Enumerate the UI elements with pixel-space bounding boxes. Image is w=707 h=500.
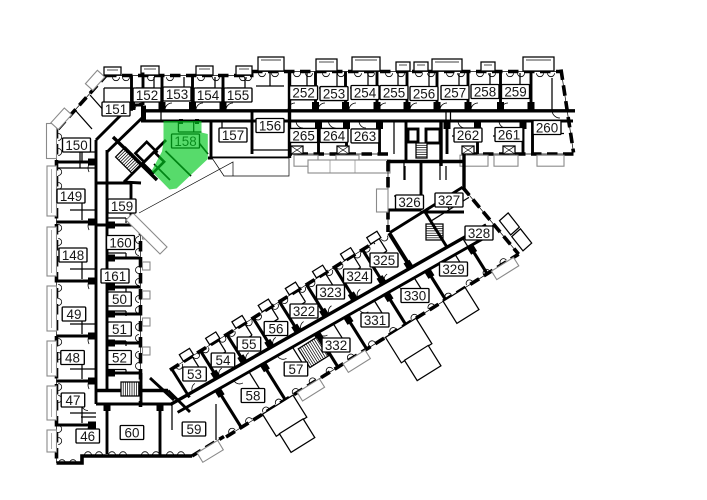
svg-text:327: 327 bbox=[438, 193, 460, 208]
svg-text:59: 59 bbox=[187, 422, 202, 437]
svg-text:324: 324 bbox=[346, 269, 369, 284]
svg-text:262: 262 bbox=[457, 128, 479, 143]
svg-text:48: 48 bbox=[65, 350, 80, 365]
svg-text:322: 322 bbox=[293, 304, 315, 319]
svg-text:258: 258 bbox=[474, 84, 496, 99]
svg-text:256: 256 bbox=[413, 86, 435, 101]
svg-text:260: 260 bbox=[536, 120, 558, 135]
svg-text:60: 60 bbox=[125, 425, 140, 440]
svg-text:151: 151 bbox=[105, 102, 127, 117]
svg-text:53: 53 bbox=[187, 367, 202, 382]
svg-text:259: 259 bbox=[504, 84, 526, 99]
svg-text:253: 253 bbox=[323, 87, 345, 102]
svg-text:255: 255 bbox=[383, 85, 405, 100]
svg-text:161: 161 bbox=[104, 269, 126, 284]
svg-text:252: 252 bbox=[292, 86, 314, 101]
svg-text:156: 156 bbox=[259, 118, 281, 133]
svg-text:54: 54 bbox=[216, 353, 231, 368]
svg-text:57: 57 bbox=[289, 362, 304, 377]
svg-text:325: 325 bbox=[373, 253, 395, 268]
svg-text:52: 52 bbox=[112, 350, 127, 365]
svg-text:328: 328 bbox=[468, 226, 490, 241]
svg-text:160: 160 bbox=[109, 235, 131, 250]
svg-text:55: 55 bbox=[242, 337, 257, 352]
svg-text:264: 264 bbox=[323, 128, 346, 143]
svg-text:49: 49 bbox=[67, 307, 82, 322]
svg-text:332: 332 bbox=[325, 338, 347, 353]
svg-text:50: 50 bbox=[112, 292, 127, 307]
svg-text:265: 265 bbox=[292, 128, 314, 143]
svg-text:155: 155 bbox=[227, 88, 249, 103]
svg-text:152: 152 bbox=[136, 88, 158, 103]
svg-text:261: 261 bbox=[498, 127, 520, 142]
svg-text:254: 254 bbox=[354, 85, 377, 100]
svg-text:47: 47 bbox=[66, 393, 81, 408]
svg-text:157: 157 bbox=[222, 128, 244, 143]
svg-text:326: 326 bbox=[398, 195, 420, 210]
svg-text:323: 323 bbox=[319, 285, 341, 300]
svg-text:263: 263 bbox=[354, 129, 376, 144]
svg-text:330: 330 bbox=[404, 288, 426, 303]
svg-text:153: 153 bbox=[166, 87, 188, 102]
svg-text:58: 58 bbox=[246, 388, 261, 403]
svg-text:150: 150 bbox=[65, 138, 87, 153]
svg-text:154: 154 bbox=[197, 88, 220, 103]
svg-text:331: 331 bbox=[364, 313, 386, 328]
svg-text:56: 56 bbox=[269, 321, 284, 336]
svg-text:149: 149 bbox=[60, 189, 82, 204]
svg-text:46: 46 bbox=[80, 429, 95, 444]
svg-text:329: 329 bbox=[442, 262, 464, 277]
svg-text:257: 257 bbox=[444, 85, 466, 100]
svg-text:51: 51 bbox=[112, 322, 127, 337]
svg-text:159: 159 bbox=[111, 199, 133, 214]
svg-text:148: 148 bbox=[62, 248, 84, 263]
